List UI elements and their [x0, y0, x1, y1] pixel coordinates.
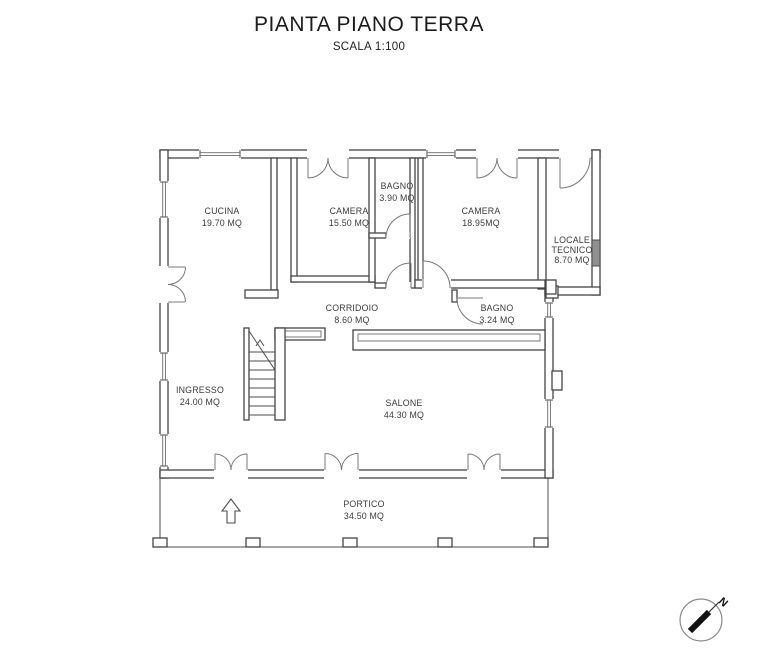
- flue-box-right-wall: [552, 371, 562, 390]
- room-label-corridoio-area: 8.60 MQ: [334, 315, 369, 325]
- door-arc: [231, 454, 247, 470]
- portico-column: [153, 538, 167, 547]
- wall-corridor-stub: [245, 290, 278, 298]
- door-arc: [560, 158, 590, 188]
- opening-portico-door-2: [324, 469, 359, 479]
- wall-vestibule-stub: [375, 283, 386, 288]
- room-label-salone-name: SALONE: [386, 398, 423, 408]
- door-arc: [168, 285, 186, 303]
- wall-bagno2-stub: [452, 290, 457, 302]
- window-top-cucina: [199, 149, 241, 159]
- wall-cucina-right: [271, 158, 277, 290]
- window-right-bagno2: [544, 302, 554, 318]
- portico-column: [246, 538, 260, 547]
- room-label-ingresso-name: INGRESSO: [176, 385, 224, 395]
- room-label-camera1-area: 15.50 MQ: [329, 218, 369, 228]
- wall-stair-right: [275, 328, 285, 420]
- floor-plan-drawing: CUCINA 19.70 MQ CAMERA 15.50 MQ BAGNO 3.…: [0, 0, 768, 650]
- door-arc: [308, 158, 328, 178]
- room-label-bagno1-name: BAGNO: [381, 181, 414, 191]
- window-left-cucina: [159, 181, 169, 218]
- window-top-camera2: [426, 149, 456, 159]
- room-label-camera1-name: CAMERA: [330, 206, 369, 216]
- opening-locale-door: [559, 149, 591, 159]
- opening-vestibule-door: [386, 282, 411, 289]
- room-label-salone-area: 44.30 MQ: [384, 410, 424, 420]
- stair-treads: [249, 352, 275, 415]
- room-label-camera2-name: CAMERA: [462, 206, 501, 216]
- window-left-ingresso-lower: [159, 434, 169, 467]
- staircase: [244, 328, 275, 420]
- door-arc: [342, 454, 359, 471]
- room-label-locale-line2: TECNICO: [552, 245, 593, 255]
- hatch-box-wing-bottom: [546, 280, 556, 294]
- wall-salone-top: [353, 330, 545, 350]
- opening-camera1-door: [307, 149, 349, 159]
- portico-column: [534, 538, 548, 547]
- room-label-bagno1-area: 3.90 MQ: [379, 193, 414, 203]
- compass-north-indicator: N: [680, 595, 730, 641]
- window-left-ingresso-upper: [159, 352, 169, 381]
- floor-plan-sheet: PIANTA PIANO TERRA SCALA 1:100: [0, 0, 768, 650]
- opening-camera2-door: [476, 149, 518, 159]
- room-label-corridoio-name: CORRIDOIO: [326, 303, 379, 313]
- door-arc: [477, 158, 497, 178]
- door-arc: [328, 158, 348, 178]
- room-label-cucina-area: 19.70 MQ: [202, 218, 242, 228]
- room-label-ingresso-area: 24.00 MQ: [180, 397, 220, 407]
- stair-break-line: [249, 331, 275, 370]
- room-label-locale-line1: LOCALE: [554, 235, 590, 245]
- door-arc: [468, 454, 484, 470]
- window-wing-right-shaded: [592, 240, 600, 266]
- opening-camera2-inner-door: [422, 279, 451, 289]
- window-right-salone: [544, 399, 554, 428]
- wall-camera1-left: [291, 158, 297, 282]
- room-label-camera2-area: 18.95MQ: [462, 218, 500, 228]
- doors: [168, 158, 590, 470]
- door-arc: [484, 454, 500, 470]
- portico-column: [343, 538, 357, 547]
- stair-left-rail: [244, 328, 249, 420]
- wall-bagno1-bottom: [369, 233, 386, 238]
- opening-portico-door-3: [467, 469, 501, 479]
- wall-wing-right: [592, 150, 600, 295]
- opening-portico-door-1: [214, 469, 248, 479]
- door-arc: [325, 454, 342, 471]
- room-label-bagno2-name: BAGNO: [481, 303, 514, 313]
- room-label-locale-area: 8.70 MQ: [554, 255, 589, 265]
- door-arc: [497, 158, 517, 178]
- room-label-portico-name: PORTICO: [343, 499, 384, 509]
- entrance-arrow-icon: [222, 499, 240, 523]
- door-arc: [168, 267, 186, 285]
- room-label-bagno2-area: 3.24 MQ: [479, 315, 514, 325]
- wall-camera1-right: [369, 158, 375, 282]
- portico-column: [438, 538, 452, 547]
- door-arc: [215, 454, 231, 470]
- opening-cucina-door: [159, 266, 169, 303]
- opening-bagno1-door: [386, 232, 410, 239]
- room-label-portico-area: 34.50 MQ: [344, 511, 384, 521]
- wall-camera2-left: [418, 158, 423, 288]
- wall-camera2-locale: [538, 158, 546, 289]
- room-label-cucina-name: CUCINA: [205, 206, 240, 216]
- wall-camera1-bottom: [291, 276, 375, 282]
